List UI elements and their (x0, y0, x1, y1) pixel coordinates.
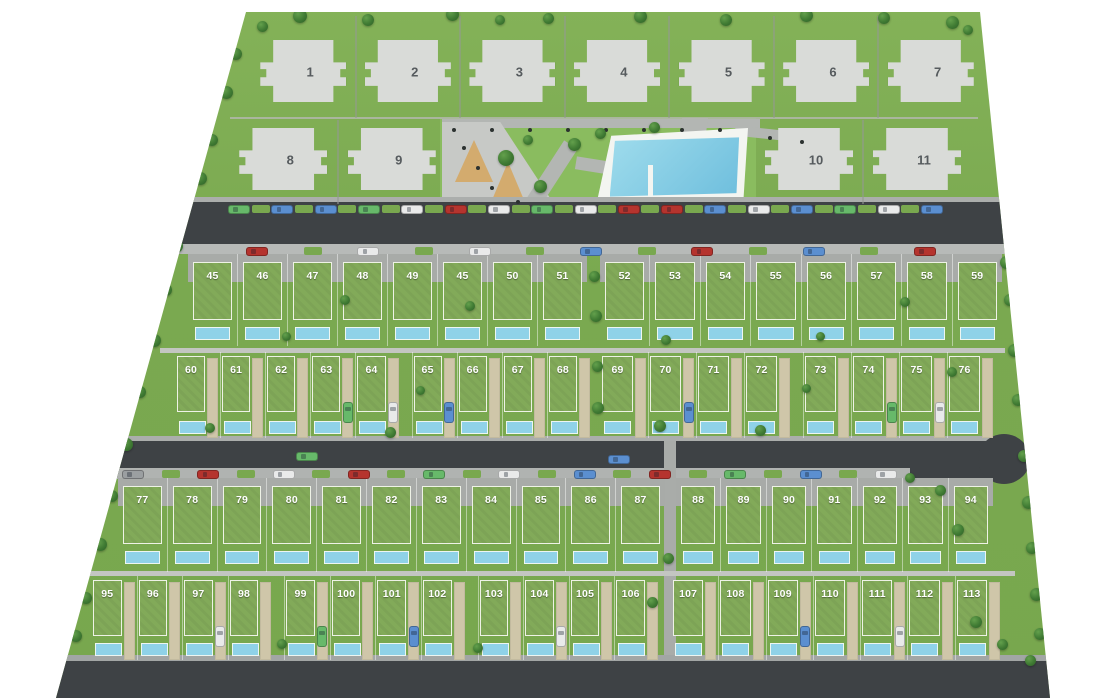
tree-icon (385, 427, 396, 438)
tree-icon (816, 332, 825, 341)
tree-icon (1012, 394, 1024, 406)
tree-icon (654, 420, 666, 432)
tree-icon (800, 9, 813, 22)
tree-icon (257, 21, 268, 32)
tree-icon (340, 295, 350, 305)
tree-icon (970, 616, 982, 628)
tree-icon (465, 301, 475, 311)
tree-icon (543, 13, 554, 24)
tree-icon (997, 639, 1008, 650)
tree-icon (900, 297, 910, 307)
tree-icon (720, 14, 732, 26)
tree-icon (755, 425, 766, 436)
tree-icon (205, 423, 215, 433)
tree-icon (498, 150, 514, 166)
tree-icon (1008, 344, 1021, 357)
tree-icon (995, 115, 1006, 126)
tree-icon (663, 553, 674, 564)
tree-icon (160, 284, 172, 296)
tree-icon (1000, 256, 1013, 269)
tree-icon (220, 86, 233, 99)
tree-icon (1025, 655, 1036, 666)
tree-icon (106, 490, 118, 502)
tree-icon (282, 332, 291, 341)
tree-icon (362, 14, 374, 26)
tree-icon (986, 56, 998, 68)
tree-icon (277, 639, 287, 649)
tree-icon (80, 592, 92, 604)
tree-icon (1022, 496, 1035, 509)
tree-icon (194, 172, 207, 185)
tree-icon (592, 402, 604, 414)
tree-icon (134, 386, 146, 398)
tree-icon (595, 128, 606, 139)
site-area: 1234567891011 45464748494550515253545556… (0, 0, 1120, 700)
tree-icon (534, 180, 547, 193)
tree-icon (634, 10, 647, 23)
tree-icon (293, 9, 307, 23)
tree-icon (1034, 628, 1046, 640)
tree-icon (416, 386, 425, 395)
tree-icon (935, 485, 946, 496)
tree-icon (590, 310, 602, 322)
tree-icon (94, 538, 107, 551)
tree-icon (70, 630, 82, 642)
tree-icon (952, 524, 964, 536)
tree-icon (878, 12, 890, 24)
tree-icon (148, 334, 161, 347)
tree-icon (946, 16, 959, 29)
tree-icon (1018, 450, 1030, 462)
tree-icon (947, 367, 957, 377)
tree-icon (446, 8, 459, 21)
tree-icon (495, 15, 505, 25)
tree-icon (120, 438, 133, 451)
tree-icon (592, 361, 603, 372)
tree-icon (649, 122, 660, 133)
tree-icon (589, 271, 600, 282)
tree-icon (1030, 588, 1043, 601)
tree-icon (568, 138, 581, 151)
tree-icon (1026, 542, 1038, 554)
tree-icon (963, 25, 973, 35)
tree-icon (230, 48, 242, 60)
tree-icon (802, 384, 811, 393)
tree-icon (647, 597, 658, 608)
tree-icon (473, 643, 483, 653)
tree-icon (206, 134, 218, 146)
trees-layer (0, 0, 1120, 700)
tree-icon (169, 239, 183, 253)
masterplan-image: 1234567891011 45464748494550515253545556… (0, 0, 1120, 700)
tree-icon (661, 335, 671, 345)
tree-icon (1004, 294, 1016, 306)
tree-icon (905, 473, 915, 483)
tree-icon (523, 135, 533, 145)
